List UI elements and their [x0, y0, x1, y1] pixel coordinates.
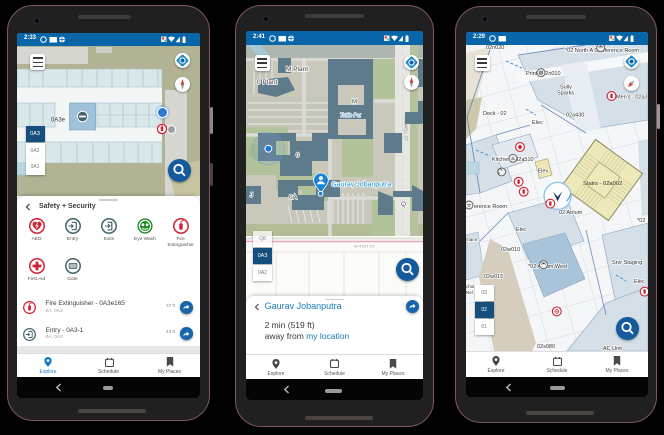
svg-text:Stairs - 02a002: Stairs - 02a002: [583, 181, 622, 187]
svg-text:Gaurav Jobanputra: Gaurav Jobanputra: [331, 182, 391, 189]
svg-text:Elev: Elev: [538, 169, 549, 175]
svg-text:erence Room: erence Room: [474, 204, 507, 210]
svg-text:0A3e: 0A3e: [51, 118, 66, 124]
svg-text:Deck - 02: Deck - 02: [483, 111, 507, 117]
svg-text:02s080: 02s080: [537, 344, 555, 350]
svg-text:02w010: 02w010: [501, 247, 520, 253]
svg-text:Sparks: Sparks: [557, 91, 574, 97]
svg-text:Elec: Elec: [516, 227, 527, 233]
svg-text:W 41ST ST: W 41ST ST: [354, 244, 375, 249]
svg-text:02 Atrium: 02 Atrium: [559, 210, 583, 216]
svg-text:Srvr Staging: Srvr Staging: [612, 260, 642, 266]
svg-text:0A: 0A: [289, 194, 298, 201]
svg-text:chin: chin: [466, 284, 475, 289]
svg-text:M: M: [352, 100, 357, 106]
svg-text:*02 Atrium West: *02 Atrium West: [528, 264, 568, 270]
svg-text:02n020: 02n020: [486, 45, 504, 51]
svg-text:Print - 02n010: Print - 02n010: [526, 71, 561, 77]
svg-text:Kitchen - 02a510: Kitchen - 02a510: [492, 157, 534, 163]
svg-text:Elec: Elec: [634, 279, 645, 285]
svg-text:Men's - 02a3: Men's - 02a3: [616, 95, 648, 101]
svg-text:Rel: Rel: [466, 290, 473, 295]
svg-text:0 Plant: 0 Plant: [257, 79, 277, 86]
svg-text:Tuttle Po:: Tuttle Po:: [340, 113, 362, 119]
svg-text:Elec: Elec: [532, 120, 543, 126]
svg-text:02w015: 02w015: [484, 274, 503, 280]
svg-text:Q: Q: [401, 201, 406, 208]
svg-text:02a430: 02a430: [566, 113, 584, 119]
svg-text:mann: mann: [466, 237, 478, 242]
svg-text:M Plant: M Plant: [286, 66, 308, 73]
svg-text:J: J: [250, 193, 253, 199]
svg-text:*02: *02: [637, 218, 645, 224]
